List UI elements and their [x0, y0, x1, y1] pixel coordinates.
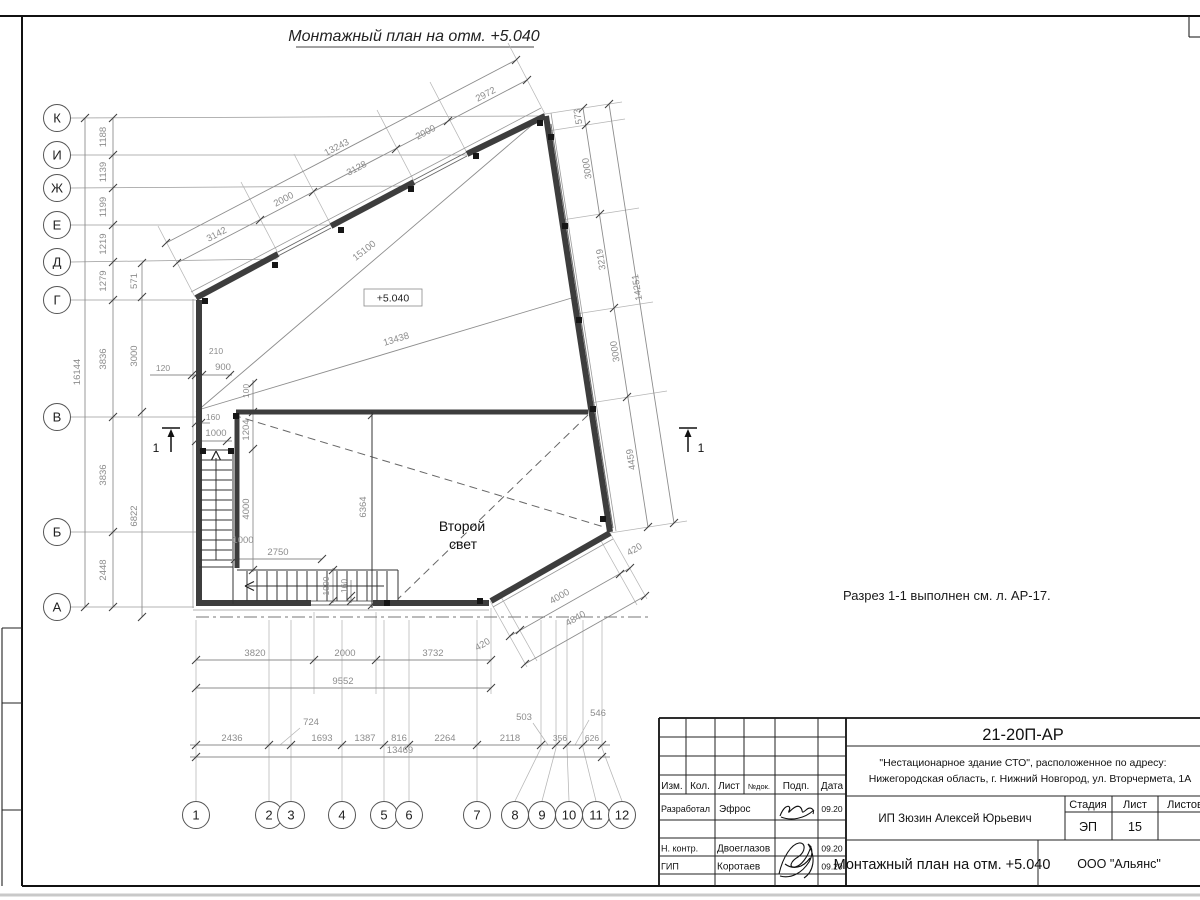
- dim-label: 503: [516, 712, 532, 723]
- dim-label: 1199: [98, 197, 109, 217]
- dim-label: 210: [209, 346, 223, 356]
- anchor-plate: [600, 516, 606, 522]
- axis-number: 12: [615, 808, 629, 823]
- axis-number: 7: [473, 808, 480, 823]
- axis-letter: Д: [53, 255, 62, 270]
- dim-label: 100: [241, 384, 251, 398]
- rev-col-header: Дата: [821, 781, 844, 792]
- dim-label: 6364: [358, 496, 369, 517]
- dim-label: 3000: [129, 345, 140, 366]
- axis-number: 1: [192, 808, 199, 823]
- project-address-line1: "Нестационарное здание СТО", расположенн…: [879, 757, 1166, 769]
- axis-number: 9: [538, 808, 545, 823]
- client-name: ИП Зюзин Алексей Юрьевич: [878, 813, 1031, 825]
- dim-label: 1188: [98, 127, 109, 147]
- dim-label: 13469: [387, 745, 413, 756]
- rev-col-header: №док.: [748, 782, 770, 791]
- dim-label: 3836: [98, 348, 109, 369]
- dim-label: 16144: [72, 359, 83, 385]
- anchor-plate: [228, 448, 234, 454]
- dim-label: 2436: [221, 733, 242, 744]
- staff-role: Н. контр.: [661, 844, 698, 854]
- section-note: Разрез 1-1 выполнен см. л. АР-17.: [843, 588, 1051, 603]
- axis-number: 10: [562, 808, 576, 823]
- axis-letter: Ж: [51, 181, 63, 196]
- dim-label: 571: [129, 273, 140, 289]
- axis-number: 2: [265, 808, 272, 823]
- sheet-label: Лист: [1123, 799, 1147, 811]
- dim-label: 1204: [241, 419, 252, 440]
- staff-date: 09.20: [821, 804, 843, 814]
- staff-date: 09.20: [821, 862, 843, 872]
- dim-label: 3732: [422, 648, 443, 659]
- stage-label: Стадия: [1069, 799, 1107, 811]
- axis-number: 11: [589, 808, 603, 823]
- dim-label: 546: [590, 708, 606, 719]
- dim-label: 1000: [321, 576, 331, 595]
- axis-number: 4: [338, 808, 345, 823]
- dim-label: 2750: [267, 547, 288, 558]
- dim-label: 3836: [98, 464, 109, 485]
- dim-label: 160: [206, 412, 220, 422]
- dim-label: 2448: [98, 559, 109, 580]
- dim-label: 1279: [98, 270, 109, 291]
- rev-col-header: Лист: [718, 781, 740, 792]
- rev-col-header: Кол.: [690, 781, 710, 792]
- staff-name: Коротаев: [717, 862, 760, 873]
- staff-date: 09.20: [821, 844, 843, 854]
- dim-label: 1139: [98, 162, 109, 182]
- dim-label: 9552: [332, 676, 353, 687]
- dim-label: 1219: [98, 233, 109, 254]
- architectural-drawing: Монтажный план на отм. +5.040 +5.040 Вто…: [0, 0, 1200, 900]
- dim-label: 1000: [205, 428, 226, 439]
- anchor-plate: [562, 223, 568, 229]
- anchor-plate: [548, 134, 554, 140]
- staff-role: Разработал: [661, 804, 710, 814]
- dim-label: 6822: [129, 505, 140, 526]
- dim-label: 2264: [434, 733, 455, 744]
- sheet-number: 15: [1128, 820, 1142, 834]
- anchor-plate: [233, 413, 239, 419]
- dim-label: 2000: [334, 648, 355, 659]
- anchor-plate: [272, 262, 278, 268]
- anchor-plate: [408, 186, 414, 192]
- dim-label: 3820: [244, 648, 265, 659]
- room-label-line1: Второй: [439, 518, 485, 534]
- anchor-plate: [338, 227, 344, 233]
- room-label-line2: свет: [449, 536, 478, 552]
- anchor-plate: [202, 298, 208, 304]
- axis-number: 6: [405, 808, 412, 823]
- axis-letter: Е: [53, 218, 62, 233]
- axis-letter: Б: [53, 525, 62, 540]
- dim-label: 2118: [500, 733, 520, 744]
- dim-label: 356: [553, 733, 567, 743]
- company-name: ООО "Альянс": [1077, 857, 1161, 871]
- dim-label: 4000: [241, 498, 252, 519]
- sheets-label: Листов: [1167, 799, 1200, 811]
- doc-number: 21-20П-АР: [982, 726, 1064, 744]
- anchor-plate: [590, 406, 596, 412]
- axis-number: 3: [287, 808, 294, 823]
- anchor-plate: [384, 600, 390, 606]
- drawing-sheet: Монтажный план на отм. +5.040 +5.040 Вто…: [0, 0, 1200, 900]
- staff-name: Эфрос: [719, 803, 751, 815]
- dim-label: 900: [215, 362, 231, 373]
- elevation-label: +5.040: [377, 293, 410, 305]
- dim-label: 160: [339, 579, 349, 593]
- axis-letter: И: [52, 148, 61, 163]
- section-mark-left: 1: [153, 441, 160, 455]
- project-address-line2: Нижегородская область, г. Нижний Новгоро…: [869, 773, 1192, 785]
- anchor-plate: [537, 120, 543, 126]
- section-mark-right: 1: [698, 441, 705, 455]
- axis-letter: Г: [53, 293, 60, 308]
- drawing-name: Монтажный план на отм. +5.040: [834, 857, 1051, 873]
- anchor-plate: [200, 448, 206, 454]
- stage-value: ЭП: [1079, 820, 1097, 834]
- dim-label: 1387: [354, 733, 375, 744]
- dim-label: 626: [585, 733, 599, 743]
- anchor-plate: [473, 153, 479, 159]
- dim-label: 1693: [311, 733, 332, 744]
- axis-number: 8: [511, 808, 518, 823]
- axis-number: 5: [380, 808, 387, 823]
- anchor-plate: [477, 598, 483, 604]
- dim-label: 120: [156, 363, 170, 373]
- axis-letter: А: [53, 600, 62, 615]
- staff-role: ГИП: [661, 862, 679, 872]
- dim-label: 724: [303, 717, 319, 728]
- dim-label: 1000: [232, 535, 253, 546]
- rev-col-header: Подп.: [783, 781, 810, 792]
- rev-col-header: Изм.: [661, 781, 682, 792]
- anchor-plate: [576, 317, 582, 323]
- staff-name: Двоеглазов: [717, 844, 770, 855]
- page-title: Монтажный план на отм. +5.040: [288, 28, 540, 45]
- axis-letter: К: [53, 111, 61, 126]
- axis-letter: В: [53, 410, 62, 425]
- dim-label: 816: [391, 733, 407, 744]
